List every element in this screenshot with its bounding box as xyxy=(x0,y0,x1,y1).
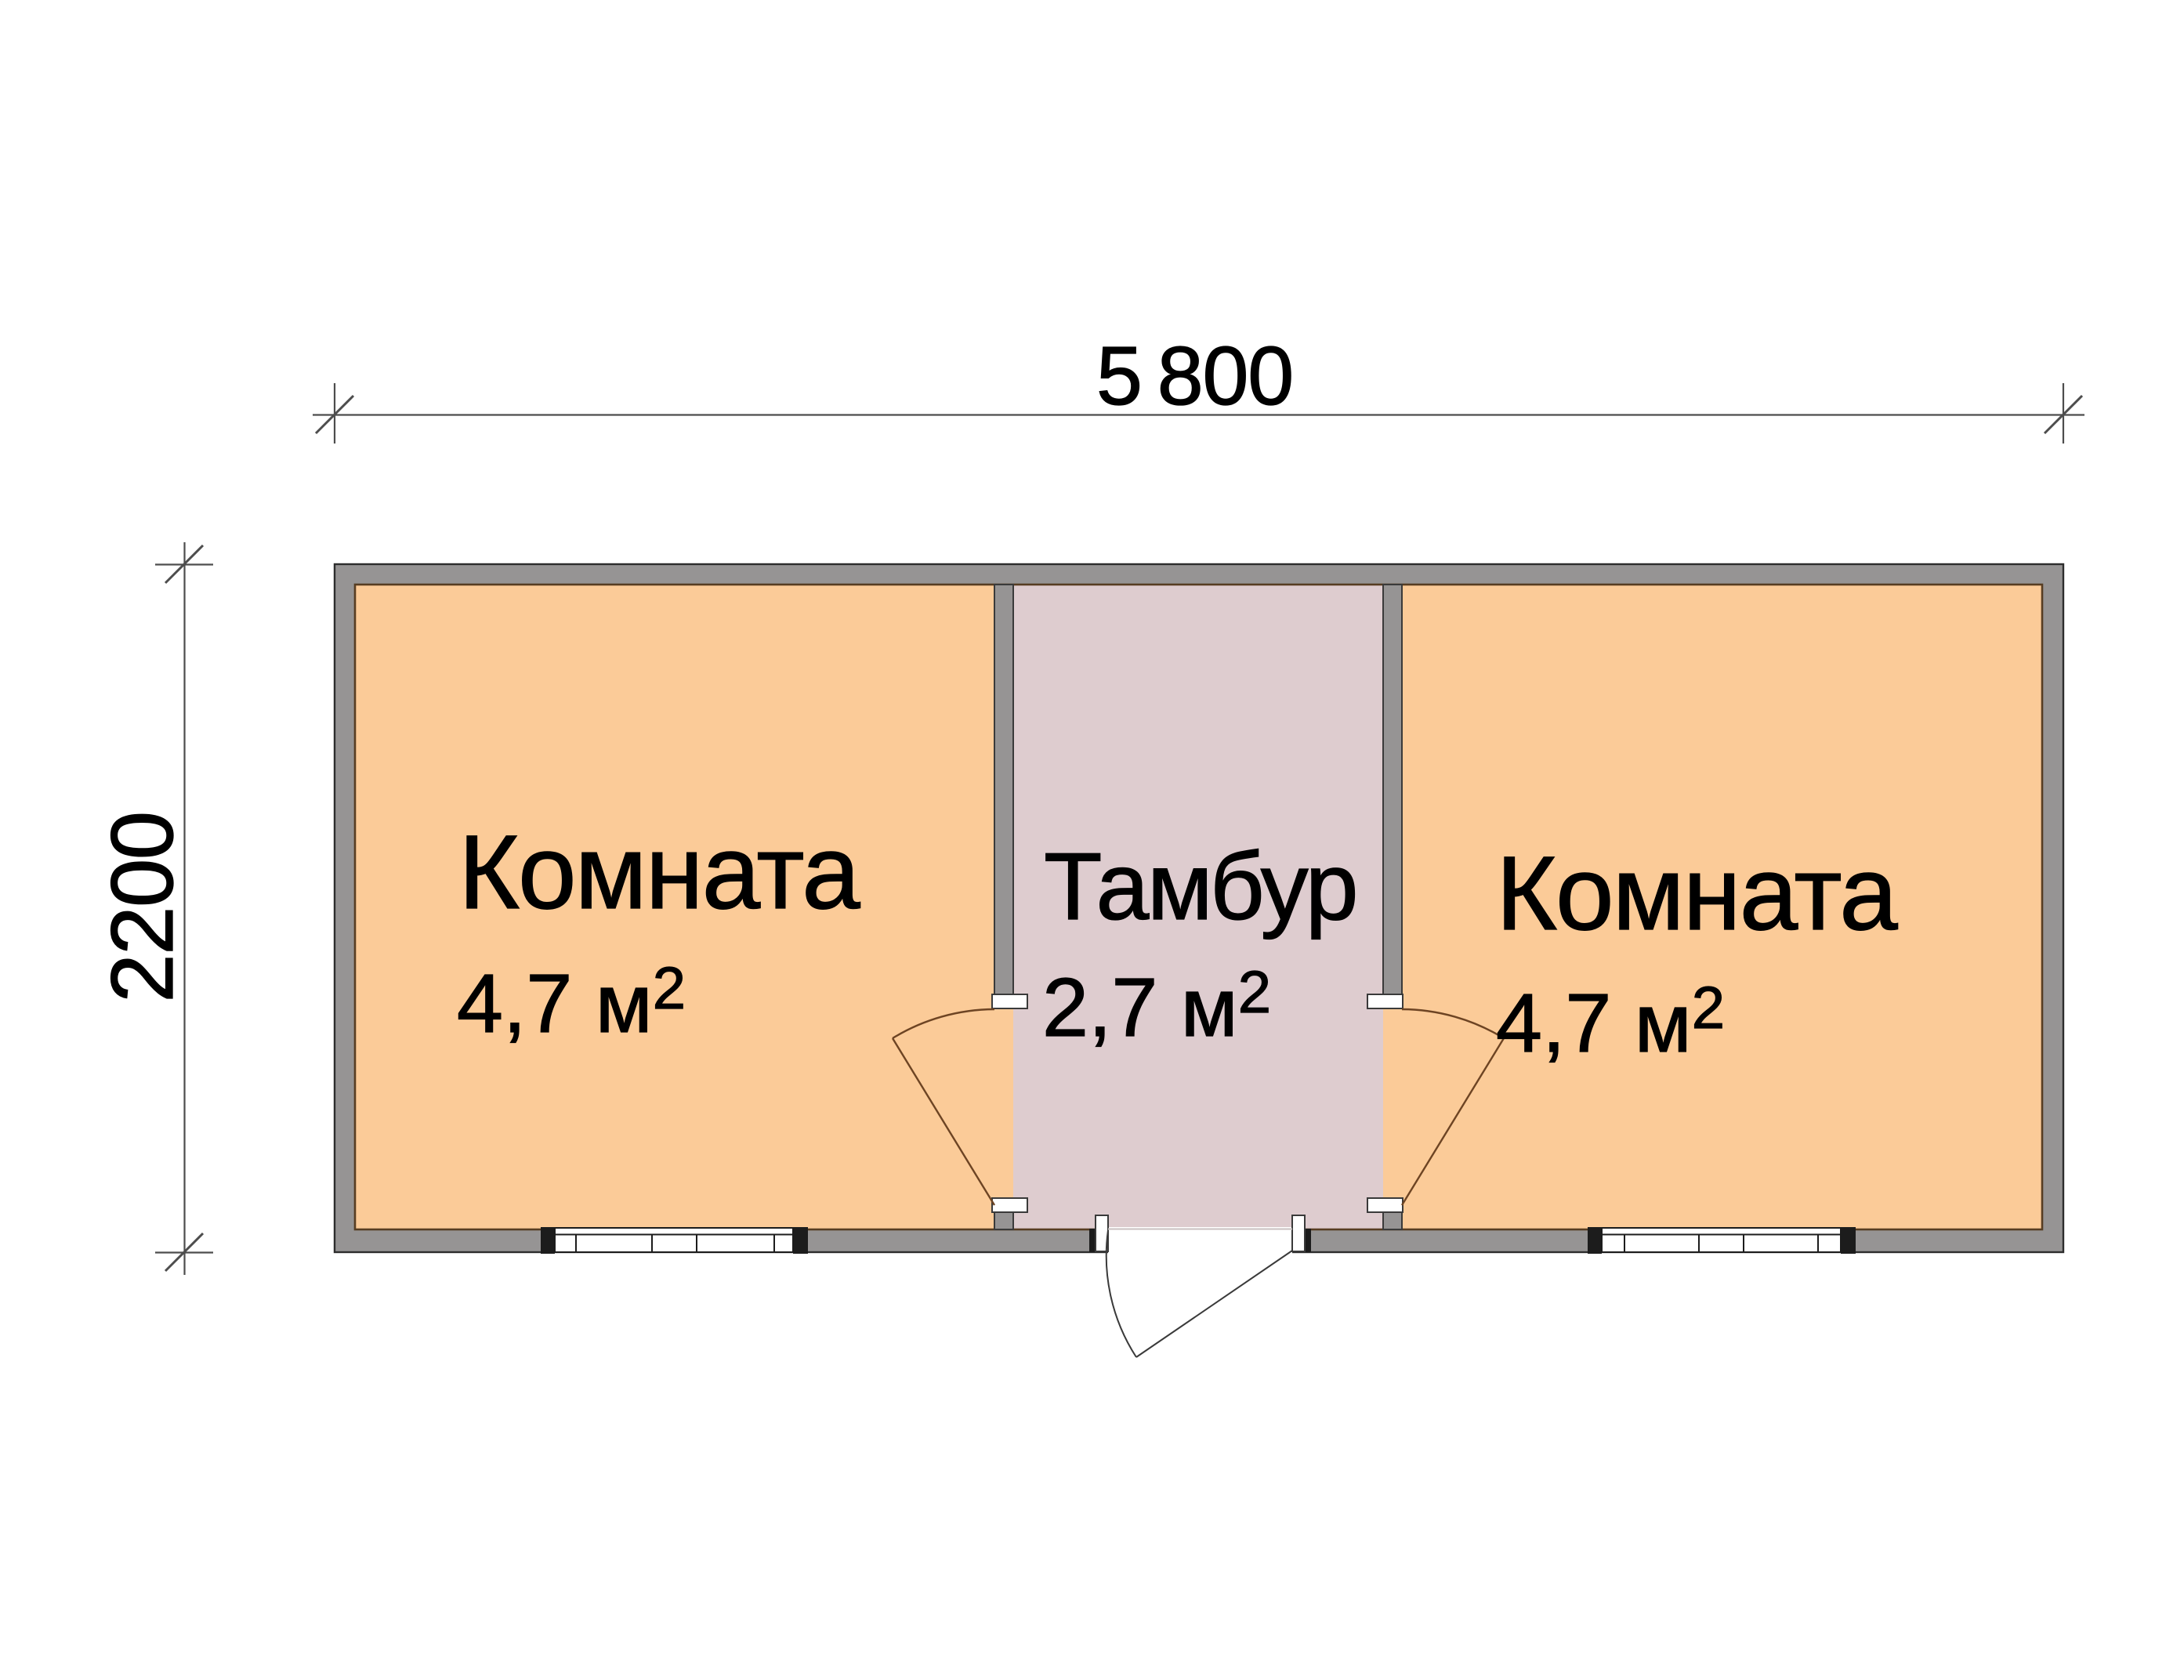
svg-text:Комната: Комната xyxy=(458,814,860,931)
svg-text:4,7 м2: 4,7 м2 xyxy=(1496,975,1725,1070)
svg-text:2,7 м2: 2,7 м2 xyxy=(1042,959,1271,1054)
svg-text:2200: 2200 xyxy=(93,812,191,1002)
svg-text:Комната: Комната xyxy=(1496,835,1898,952)
svg-text:4,7 м2: 4,7 м2 xyxy=(457,955,686,1050)
svg-text:5 800: 5 800 xyxy=(1096,330,1293,422)
svg-text:Тамбур: Тамбур xyxy=(1044,833,1356,940)
